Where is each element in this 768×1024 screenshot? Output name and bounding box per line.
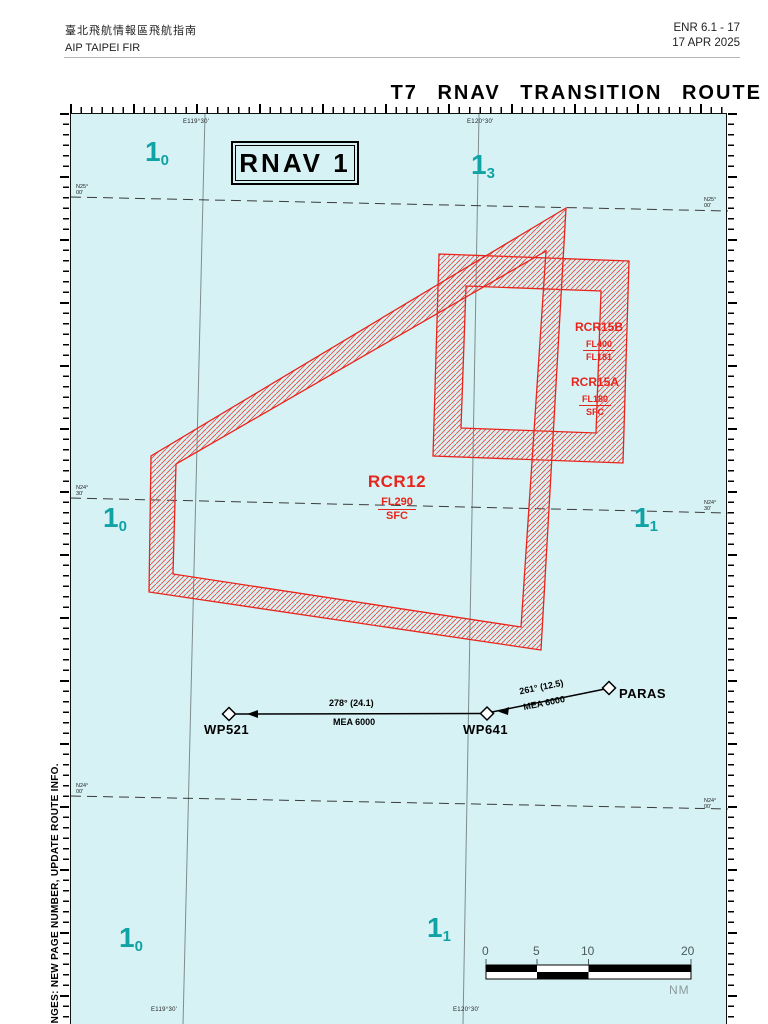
- scale-bar-segment: [486, 965, 537, 972]
- route-arrow-to-wp521: [247, 710, 258, 718]
- airspace-label-rcr15a: RCR15A FL180 SFC: [555, 375, 635, 417]
- left-tick-marks-major: [60, 113, 69, 1024]
- airspace-lower-limit: SFC: [337, 510, 457, 522]
- waypoint-diamond-paras: [603, 682, 616, 695]
- latitude-label-left-n24-00: N24°00': [76, 783, 88, 795]
- airspace-upper-limit: FL290: [378, 496, 416, 510]
- right-tick-marks-major: [728, 113, 737, 1024]
- airspace-name: RCR12: [337, 472, 457, 492]
- effective-date: 17 APR 2025: [672, 37, 740, 49]
- route-leg-wp641-wp521: [236, 714, 481, 715]
- aip-title-chinese: 臺北飛航情報區飛航指南: [65, 22, 197, 38]
- header-right: ENR 6.1 - 17 17 APR 2025: [672, 22, 740, 52]
- meridian-label-bottom-1: E119°30': [151, 1007, 177, 1013]
- scale-tick-5: 5: [533, 944, 540, 958]
- sector-label-top-left: 10: [145, 138, 169, 168]
- leg-bearing-wp641-wp521: 278° (24.1): [329, 698, 374, 708]
- latitude-label-right-n24-30: N24°30': [704, 500, 716, 512]
- airspace-name: RCR15B: [559, 320, 639, 334]
- sector-label-top-right: 13: [471, 151, 495, 181]
- latitude-label-right-n25: N25°00': [704, 197, 716, 209]
- airspace-label-rcr15b: RCR15B FL400 FL181: [559, 320, 639, 362]
- airspace-lower-limit: SFC: [555, 407, 635, 417]
- airspace-label-rcr12: RCR12 FL290 SFC: [337, 472, 457, 522]
- sector-label-bottom-center: 11: [427, 914, 451, 944]
- waypoint-label-paras: PARAS: [619, 686, 666, 701]
- scale-bar-segment: [537, 972, 589, 979]
- meridian-label-top-1: E119°30': [183, 119, 209, 125]
- sector-label-mid-right: 11: [634, 504, 658, 534]
- latitude-line-n24-00: [71, 796, 728, 809]
- chart-frame: RNAV 1 10 13 10 11 10 11 E119°30' E120°3…: [70, 113, 727, 1024]
- airspace-upper-limit: FL400: [583, 339, 615, 351]
- sector-label-bottom-left: 10: [119, 924, 143, 954]
- waypoint-label-wp641: WP641: [463, 722, 508, 737]
- scale-tick-20: 20: [681, 944, 694, 958]
- latitude-label-right-n24-00: N24°00': [704, 798, 716, 810]
- route-arrow-to-wp641: [498, 707, 509, 715]
- airspace-upper-limit: FL180: [579, 394, 611, 406]
- leg-mea-wp641-wp521: MEA 6000: [333, 717, 375, 727]
- meridian-line-e119-30: [183, 114, 205, 1024]
- waypoint-diamond-wp521: [223, 708, 236, 721]
- sector-label-mid-left: 10: [103, 504, 127, 534]
- change-note-vertical: CHANGES: NEW PAGE NUMBER, UPDATE ROUTE I…: [50, 763, 61, 1024]
- header-left: 臺北飛航情報區飛航指南 AIP TAIPEI FIR: [65, 22, 197, 54]
- top-tick-marks-major: [70, 104, 729, 113]
- rnav-designator-label: RNAV 1: [235, 145, 355, 181]
- airspace-name: RCR15A: [555, 375, 635, 389]
- chart-vector-layer: [71, 114, 728, 1024]
- header-divider: [64, 57, 740, 58]
- waypoint-diamond-wp641: [481, 707, 494, 720]
- scale-unit-nm: NM: [669, 983, 690, 997]
- aip-title-english: AIP TAIPEI FIR: [65, 42, 197, 54]
- airspace-lower-limit: FL181: [559, 352, 639, 362]
- meridian-line-e120-30: [463, 114, 479, 1024]
- meridian-label-top-2: E120°30': [467, 119, 494, 125]
- meridian-label-bottom-2: E120°30': [453, 1007, 480, 1013]
- scale-bar-segment: [589, 965, 692, 972]
- waypoint-label-wp521: WP521: [204, 722, 249, 737]
- latitude-line-n25: [71, 197, 728, 211]
- latitude-label-left-n25: N25°00': [76, 184, 88, 196]
- document-reference: ENR 6.1 - 17: [672, 22, 740, 34]
- chart-title: T7 RNAV TRANSITION ROUTE: [391, 82, 762, 105]
- rnav-designator-box: RNAV 1: [231, 141, 359, 185]
- latitude-label-left-n24-30: N24°30': [76, 485, 88, 497]
- scale-tick-0: 0: [482, 944, 489, 958]
- scale-tick-10: 10: [581, 944, 594, 958]
